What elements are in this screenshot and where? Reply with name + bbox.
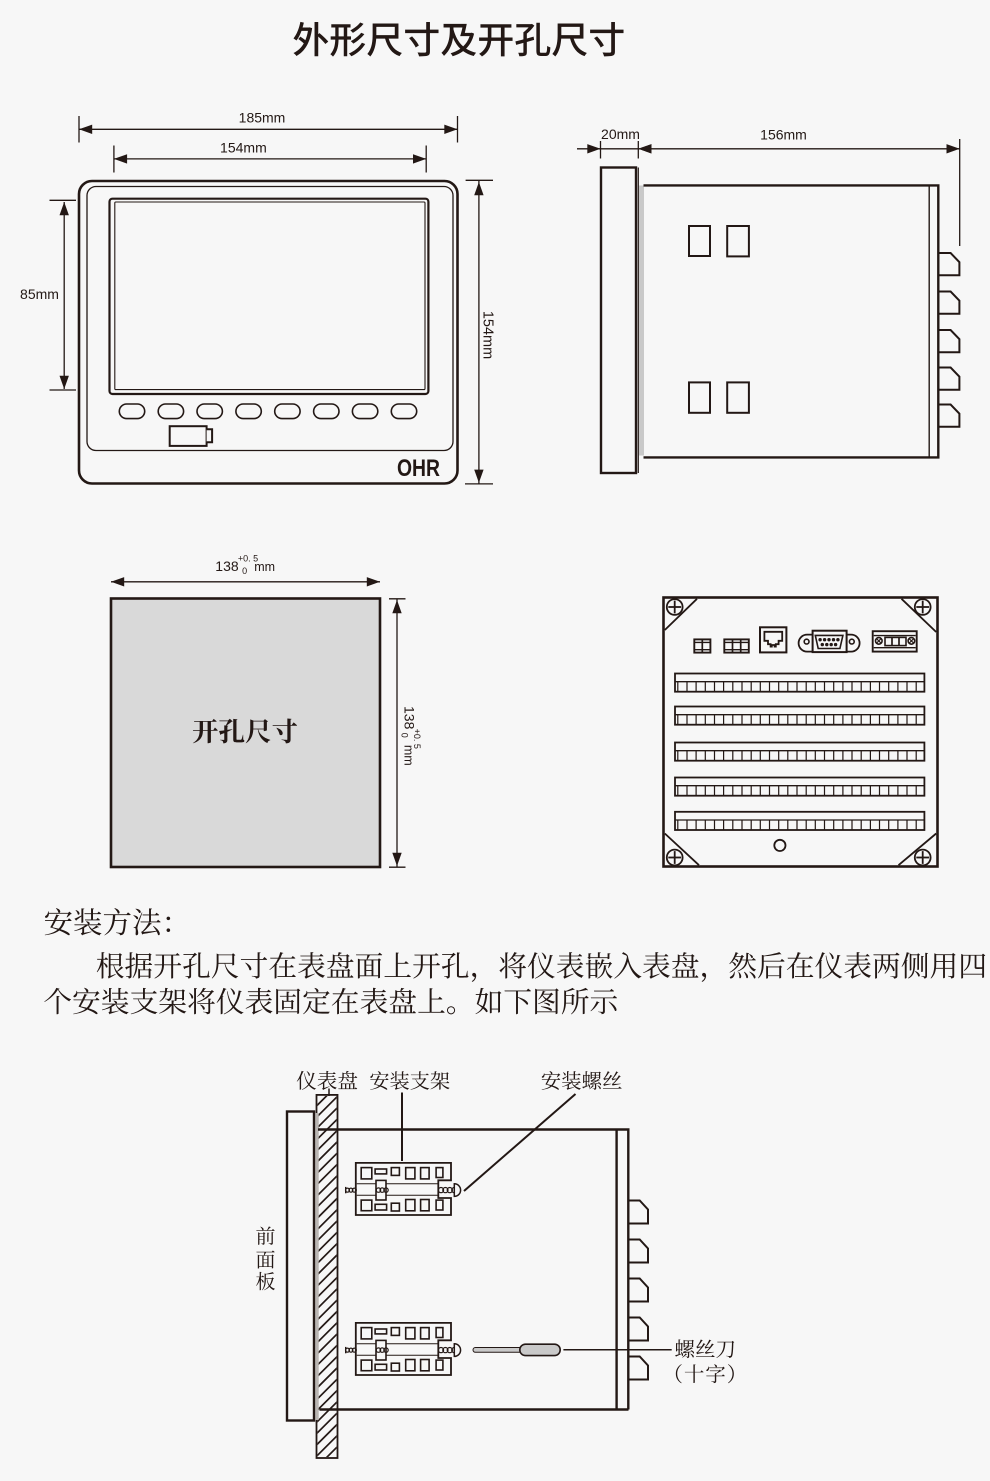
svg-text:0: 0 [242,566,247,576]
svg-text:185mm: 185mm [239,110,286,126]
svg-text:OHR: OHR [397,455,440,482]
svg-text:154mm: 154mm [220,140,267,156]
svg-text:mm: mm [254,560,275,574]
svg-text:0: 0 [400,733,410,738]
svg-text:mm: mm [402,745,416,766]
svg-text:138: 138 [402,706,418,730]
svg-text:156mm: 156mm [760,127,807,143]
svg-text:154mm: 154mm [479,311,495,359]
svg-text:138: 138 [215,558,239,574]
svg-text:20mm: 20mm [601,126,640,142]
svg-text:85mm: 85mm [20,286,59,302]
